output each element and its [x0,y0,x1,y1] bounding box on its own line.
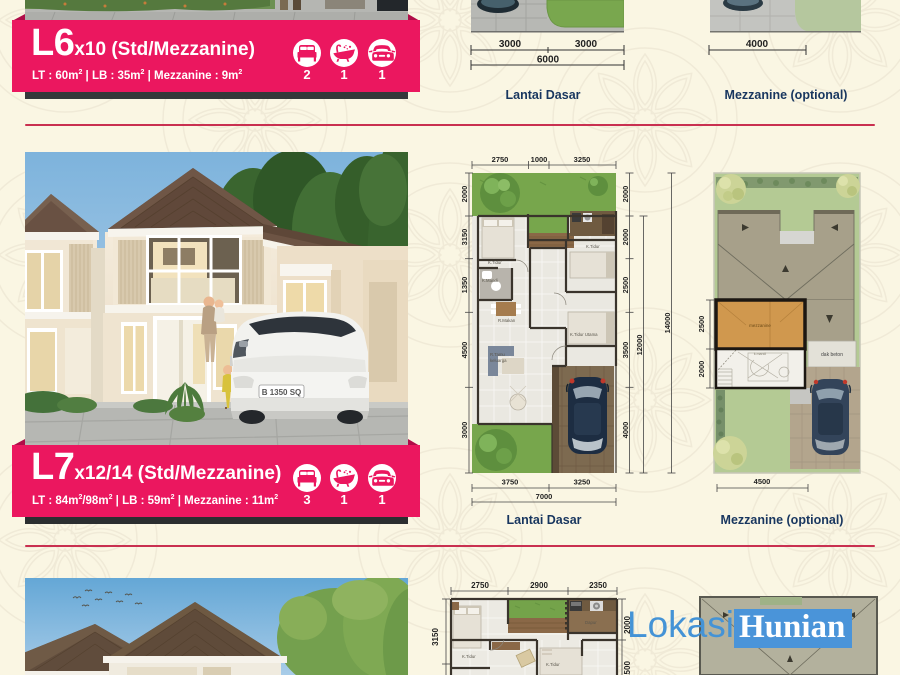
svg-text:3250: 3250 [574,478,591,487]
svg-text:K.Tidur: K.Tidur [546,662,560,667]
svg-text:4500: 4500 [754,477,771,486]
svg-text:2750: 2750 [471,581,489,590]
svg-text:dak beton: dak beton [821,352,843,358]
svg-text:6000: 6000 [537,55,560,66]
svg-text:K.Mandi: K.Mandi [482,278,498,283]
svg-text:1000: 1000 [531,155,548,164]
svg-text:K.Tidur: K.Tidur [488,260,502,265]
svg-text:2000: 2000 [621,186,630,203]
svg-text:R.Tamu: R.Tamu [490,352,505,357]
svg-text:3000: 3000 [575,39,598,50]
svg-text:keluarga: keluarga [490,358,507,363]
svg-text:3250: 3250 [574,155,591,164]
svg-text:K.Tidur: K.Tidur [586,244,600,249]
svg-text:4000: 4000 [746,39,769,50]
svg-text:2900: 2900 [530,581,548,590]
svg-text:k.mandi: k.mandi [754,352,766,356]
svg-text:K.Tidur: K.Tidur [462,654,476,659]
svg-text:3150: 3150 [431,628,440,646]
svg-text:1350: 1350 [460,277,469,294]
svg-text:2000: 2000 [621,229,630,246]
svg-text:3000: 3000 [499,39,522,50]
svg-text:2500: 2500 [697,316,706,333]
svg-text:4000: 4000 [621,422,630,439]
svg-text:2350: 2350 [589,581,607,590]
svg-text:2500: 2500 [621,277,630,294]
svg-text:7000: 7000 [536,492,553,501]
svg-text:Dapur: Dapur [585,620,597,625]
svg-text:4500: 4500 [460,342,469,359]
svg-text:2000: 2000 [697,361,706,378]
svg-text:1500: 1500 [623,661,632,675]
svg-text:K.Tidur Utama: K.Tidur Utama [570,332,598,337]
svg-text:14000: 14000 [663,313,672,334]
svg-text:B 1350 SQ: B 1350 SQ [262,388,302,397]
svg-text:mezzanine: mezzanine [749,323,771,328]
svg-text:3750: 3750 [502,478,519,487]
svg-text:3000: 3000 [460,422,469,439]
svg-text:2000: 2000 [460,186,469,203]
svg-text:2750: 2750 [492,155,509,164]
svg-text:3500: 3500 [621,342,630,359]
svg-text:R.Makan: R.Makan [498,318,516,323]
svg-text:3150: 3150 [460,229,469,246]
svg-text:12000: 12000 [635,335,644,356]
